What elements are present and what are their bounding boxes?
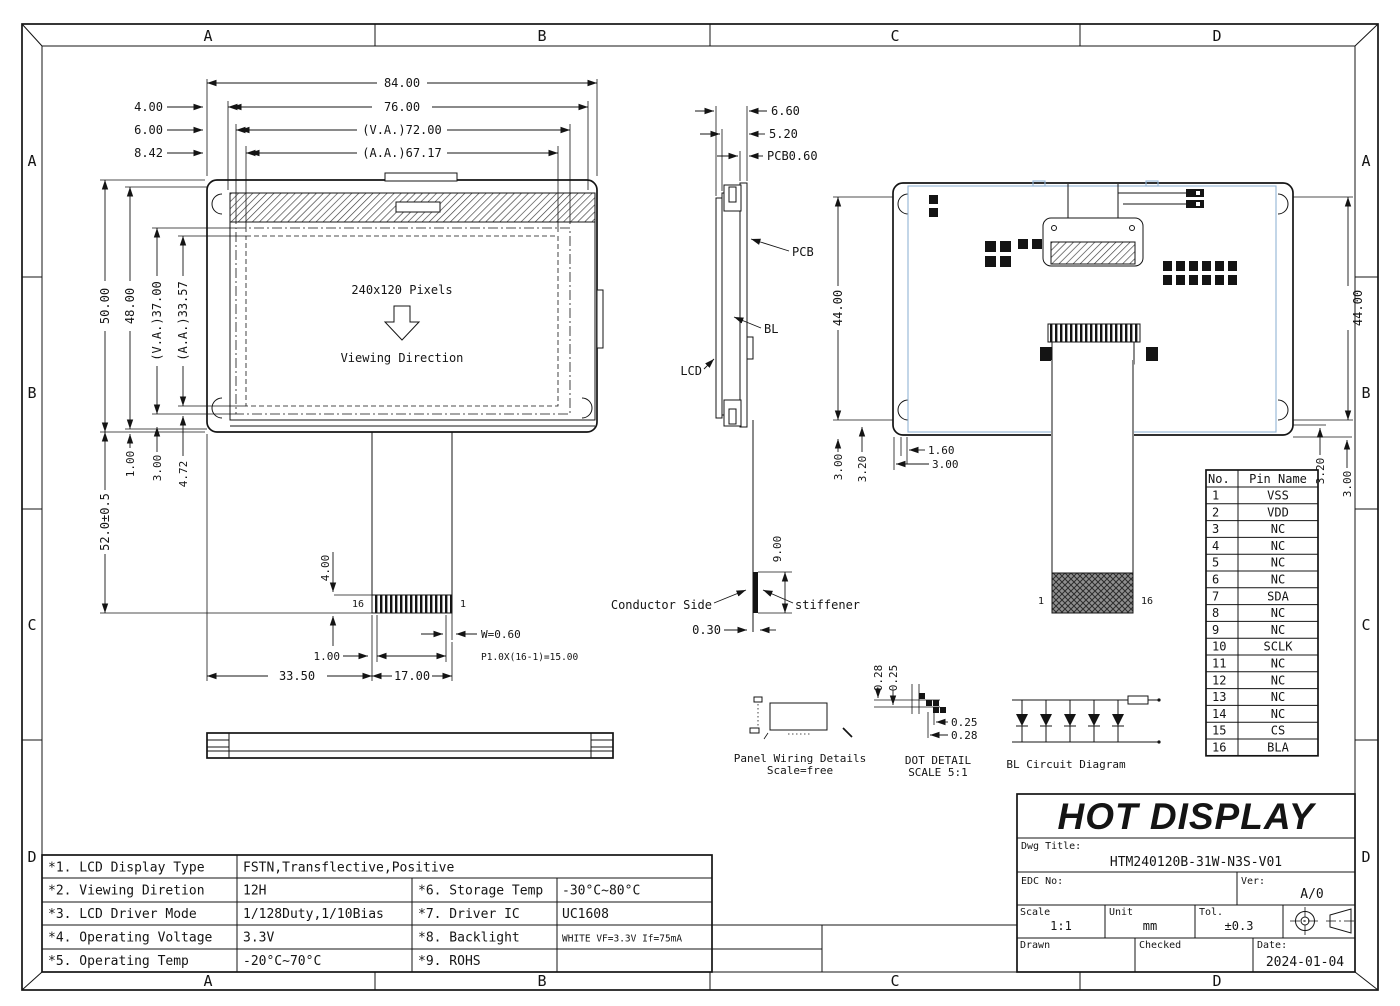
pin-no: 15 [1212,724,1226,738]
dot-dim-028-top: 0.28 [872,665,885,692]
pin-no: 2 [1212,505,1219,519]
pin-no: 1 [1212,489,1219,503]
spec-item: *2. Viewing Diretion [48,884,205,899]
dim-52: 52.0±0.5 [98,493,112,551]
lcd-glass [716,198,722,418]
dim-1: 1.00 [124,451,137,478]
dim-335: 33.50 [279,669,315,683]
dim-3-right: 3.00 [1341,471,1354,498]
dim-3: 3.00 [151,455,164,482]
spec-item: *8. Backlight [418,931,520,946]
pin-no: 14 [1212,707,1226,721]
pin-no: 16 [1212,741,1226,755]
tol-label: Tol. [1199,907,1223,918]
dim-32-right: 3.20 [1314,458,1327,485]
dim-030: 0.30 [692,623,721,637]
stiffener-label: stiffener [795,598,860,612]
zone-left-a: A [27,152,36,170]
pin-name: NC [1271,522,1285,536]
zone-bottom-d: D [1212,972,1221,990]
pin-name: NC [1271,707,1285,721]
pin-no: 5 [1212,556,1219,570]
dwg-title-value: HTM240120B-31W-N3S-V01 [1110,855,1282,870]
dim-50: 50.00 [98,288,112,324]
pin-no: 6 [1212,573,1219,587]
fpc-pin16-label: 16 [352,599,364,610]
third-angle-projection-icon [1290,907,1355,935]
spec-item: *1. LCD Display Type [48,861,205,876]
pin-name: NC [1271,673,1285,687]
led-icon [1088,700,1100,742]
bezel-opening [230,193,595,420]
fpc-slot [396,202,440,212]
dwg-title-label: Dwg Title: [1021,841,1081,852]
zone-bottom-b: B [537,972,546,990]
dot-dim-028-right: 0.28 [951,729,978,742]
edc-no-label: EDC No: [1021,876,1063,887]
rear-pin16-label: 16 [1141,596,1153,607]
dim-fpc4: 4.00 [319,555,332,582]
spec-item: *4. Operating Voltage [48,931,213,946]
ver-label: Ver: [1241,876,1265,887]
zone-bottom-c: C [890,972,899,990]
pin-name: NC [1271,556,1285,570]
zone-top-c: C [890,27,899,45]
rear-pin1-label: 1 [1038,596,1044,607]
zone-top-b: B [537,27,546,45]
fpc-pin1-label: 1 [460,599,466,610]
bl-label: BL [764,322,778,336]
spec-value: UC1608 [562,907,609,922]
dim-160: 1.60 [928,444,955,457]
top-tab [385,173,457,181]
dim-4: 4.00 [134,100,163,114]
fpc-fingers [372,595,452,613]
pin-name: NC [1271,690,1285,704]
dim-66: 6.60 [771,104,800,118]
dim-472: 4.72 [177,461,190,488]
pin-name: NC [1271,657,1285,671]
viewing-direction-label: Viewing Direction [341,351,464,365]
zone-top-a: A [203,27,212,45]
zif-connector-pins [1048,324,1140,342]
dim-pcb060: PCB0.60 [767,149,818,163]
dim-48: 48.00 [123,288,137,324]
panel-wiring-scale: Scale=free [767,764,833,777]
side-bump [597,290,603,348]
front-view: 240x120 Pixels Viewing Direction 16 1 [207,173,603,613]
scale-value: 1:1 [1050,919,1072,933]
dim-842: 8.42 [134,146,163,160]
drawing-sheet: A B C D A B C D A B C D A B C D 240x120 … [0,0,1400,1006]
dim-52s: 5.20 [769,127,798,141]
pin-name: NC [1271,623,1285,637]
dim-aa33: (A.A.)33.57 [176,281,190,360]
spec-item: *9. ROHS [418,954,481,969]
dim-va37: (V.A.)37.00 [150,281,164,360]
spec-value: -30°C~80°C [562,884,640,899]
ver-value: A/0 [1300,887,1323,902]
dim-32-left: 3.20 [856,456,869,483]
conductor-side-label: Conductor Side [611,598,712,612]
dim-17: 17.00 [394,669,430,683]
zone-right-a: A [1361,152,1370,170]
led-icon [1064,700,1076,742]
tol-value: ±0.3 [1225,919,1254,933]
zone-right-c: C [1361,616,1370,634]
scale-label: Scale [1020,907,1050,918]
pcb-label: PCB [792,245,814,259]
unit-value: mm [1143,919,1157,933]
pin-no: 4 [1212,539,1219,553]
pin-name: SCLK [1264,640,1294,654]
side-view: 6.60 5.20 PCB0.60 PCB BL LCD 9.00 Conduc… [611,104,860,637]
dim-3-bottom: 3.00 [932,458,959,471]
led-icon [1016,700,1028,742]
dim-aa67: (A.A.)67.17 [362,146,441,160]
pin-name: VSS [1267,489,1289,503]
resistor-icon [1128,696,1148,704]
driver-ic [1051,242,1135,264]
spec-item: *7. Driver IC [418,907,520,922]
date-label: Date: [1257,940,1287,951]
dim-3-left: 3.00 [832,454,845,481]
bl-circuit-diagram: BL Circuit Diagram [1006,696,1160,771]
pin-table: No. Pin Name 1VSS 2VDD 3NC 4NC 5NC 6NC 7… [1206,470,1318,756]
zone-left-b: B [27,384,36,402]
dot-dim-025-right: 0.25 [951,716,978,729]
panel-wiring-detail: Panel Wiring Details Scale=free [734,697,866,777]
rear-stiffener [1052,573,1133,613]
spec-value: 3.3V [243,931,274,946]
sheet-border: A B C D A B C D A B C D A B C D [22,24,1378,990]
dim-84: 84.00 [384,76,420,90]
pin-header-no: No. [1208,472,1230,486]
pin-header-name: Pin Name [1249,472,1307,486]
dim-6: 6.00 [134,123,163,137]
spec-item: *5. Operating Temp [48,954,189,969]
spec-item: *6. Storage Temp [418,884,543,899]
dim-w060: W=0.60 [481,628,521,641]
zone-bottom-a: A [203,972,212,990]
pin-name: NC [1271,606,1285,620]
pin-no: 8 [1212,606,1219,620]
dot-detail: 0.28 0.25 0.25 0.28 DOT DETAIL SCALE 5:1 [872,665,978,779]
pixels-label: 240x120 Pixels [351,283,452,297]
dim-76: 76.00 [384,100,420,114]
zone-right-b: B [1361,384,1370,402]
lcd-label: LCD [680,364,702,378]
dim-44-right: 44.00 [1351,290,1365,326]
zone-top-d: D [1212,27,1221,45]
date-value: 2024-01-04 [1266,955,1344,970]
spec-value: -20°C~70°C [243,954,321,969]
viewing-direction-arrow-icon [385,306,419,340]
pin-name: CS [1271,724,1285,738]
rear-view: 1 16 [893,181,1293,613]
dim-va72: (V.A.)72.00 [362,123,441,137]
dot-dim-025-top: 0.25 [887,665,900,692]
spec-value: 1/128Duty,1/10Bias [243,907,384,922]
led-icon [1112,700,1124,742]
pin-name: NC [1271,539,1285,553]
bl-circuit-title: BL Circuit Diagram [1006,758,1126,771]
pin-name: BLA [1267,741,1289,755]
dim-9: 9.00 [771,536,784,563]
pin-no: 12 [1212,673,1226,687]
dim-44-left: 44.00 [831,290,845,326]
pin-no: 13 [1212,690,1226,704]
pin-no: 9 [1212,623,1219,637]
pin-name: VDD [1267,505,1289,519]
bottom-view [207,733,613,758]
dim-fpc1: 1.00 [314,650,341,663]
led-icon [1040,700,1052,742]
dot-detail-scale: SCALE 5:1 [908,766,968,779]
pin-no: 7 [1212,589,1219,603]
checked-label: Checked [1139,940,1181,951]
pin-no: 3 [1212,522,1219,536]
title-block: HOT DISPLAY Dwg Title: HTM240120B-31W-N3… [1017,794,1355,972]
spec-item: *3. LCD Driver Mode [48,907,197,922]
company-logo: HOT DISPLAY [1058,796,1317,837]
pin-no: 10 [1212,640,1226,654]
front-dimensions: 84.00 76.00 (V.A.)72.00 (A.A.)67.17 4.00… [98,76,597,683]
unit-label: Unit [1109,907,1133,918]
stiffener-profile [754,572,759,613]
pin-name: NC [1271,573,1285,587]
spec-value: WHITE VF=3.3V If=75mA [562,934,682,945]
pin-no: 11 [1212,657,1226,671]
zone-left-c: C [27,616,36,634]
dim-pitch: P1.0X(16-1)=15.00 [481,652,579,663]
spec-table: *1. LCD Display Type FSTN,Transflective,… [42,855,1017,972]
pin-name: SDA [1267,589,1289,603]
pcb-profile [740,183,747,427]
drawn-label: Drawn [1020,940,1050,951]
backlight-body [722,193,740,415]
spec-value: 12H [243,884,266,899]
spec-value: FSTN,Transflective,Positive [243,861,454,876]
zone-left-d: D [27,848,36,866]
zone-right-d: D [1361,848,1370,866]
